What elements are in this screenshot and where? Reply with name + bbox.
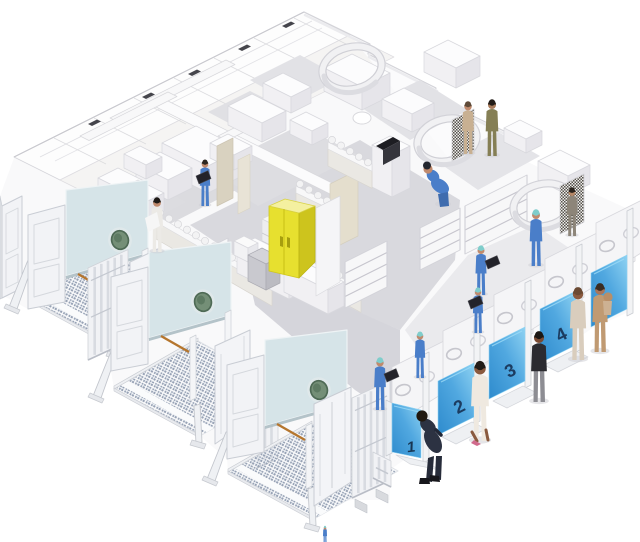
svg-text:1: 1	[407, 439, 416, 457]
